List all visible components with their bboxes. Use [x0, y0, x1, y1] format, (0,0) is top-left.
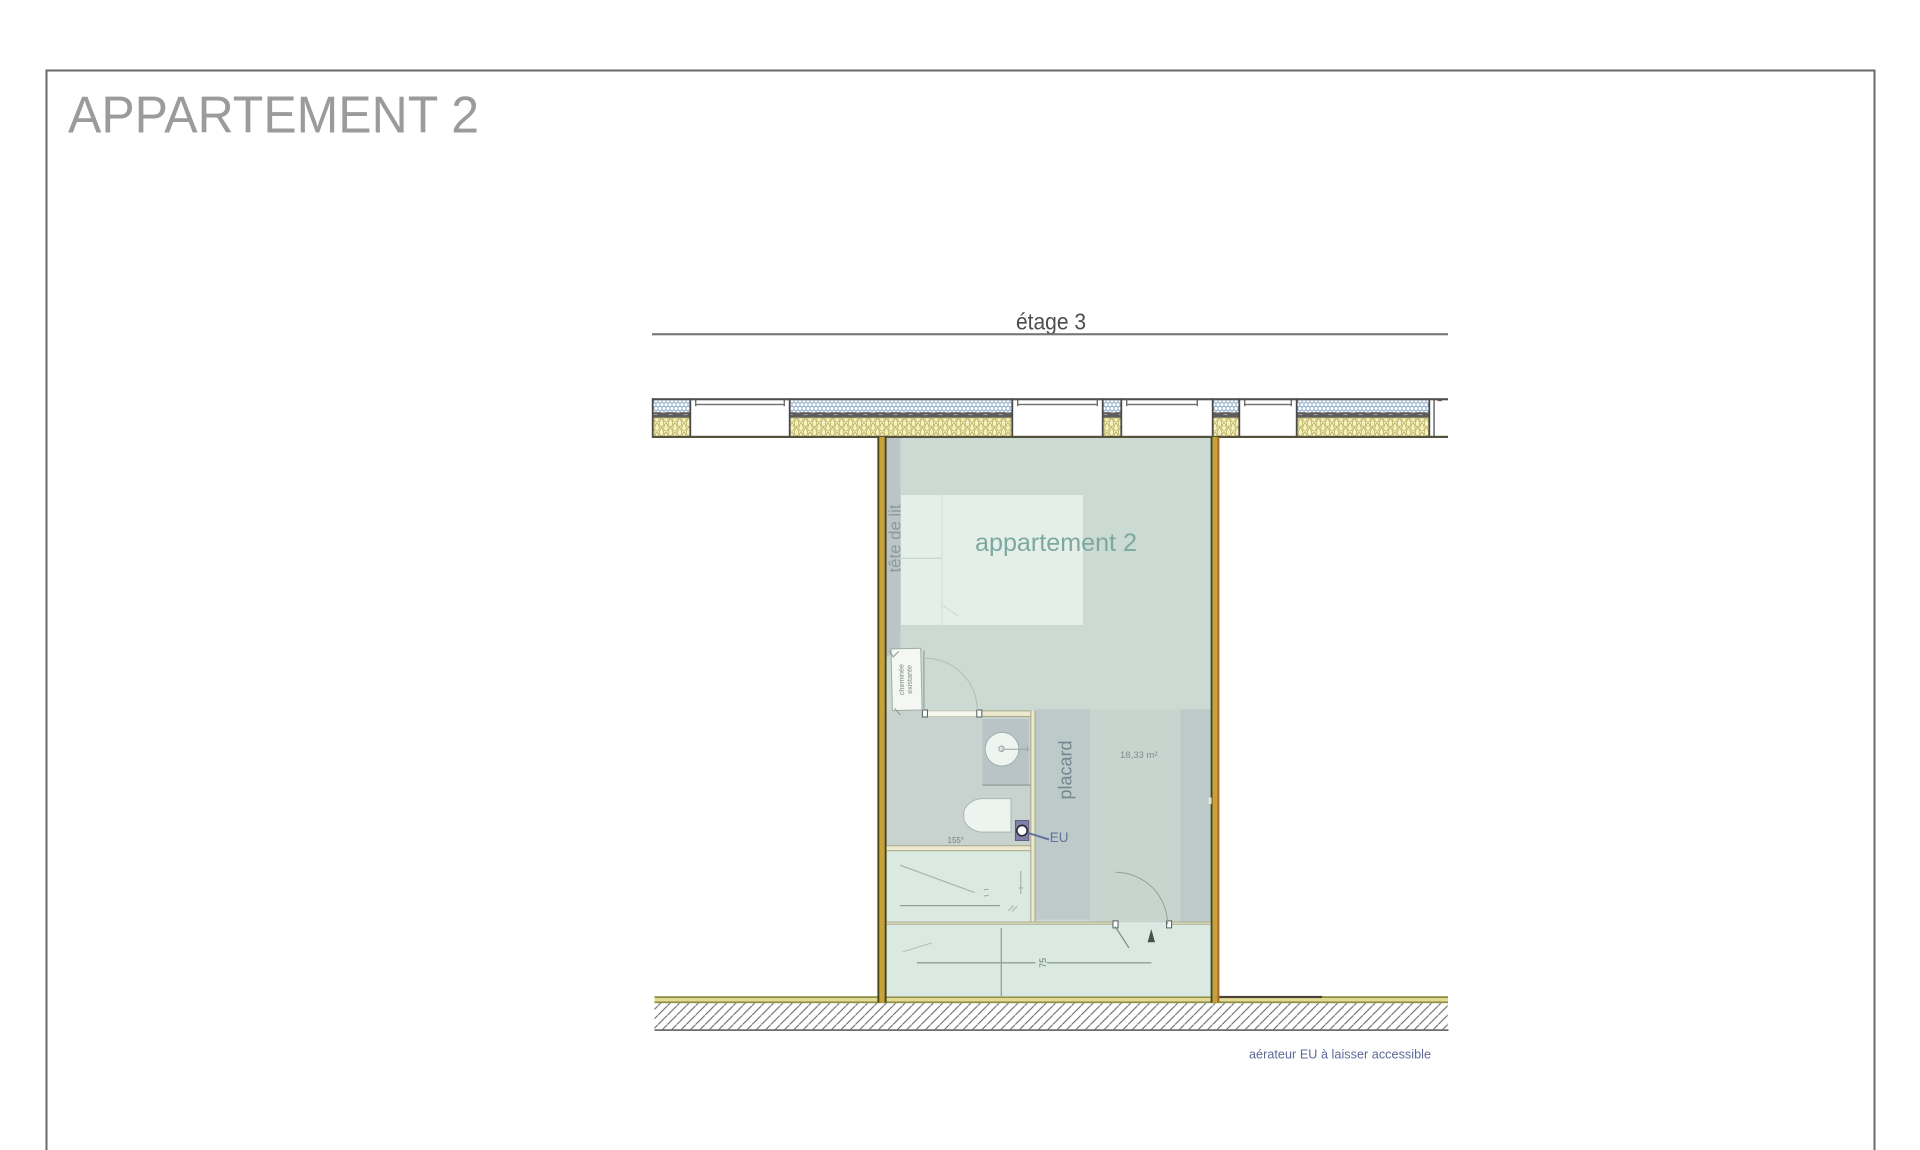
svg-text:placard: placard — [1056, 740, 1076, 799]
svg-text:155°: 155° — [948, 836, 965, 845]
svg-text:appartement 2: appartement 2 — [975, 529, 1137, 557]
svg-text:tête de lit: tête de lit — [886, 504, 905, 572]
svg-text:EU: EU — [1050, 830, 1069, 845]
svg-text:18,33 m²: 18,33 m² — [1120, 750, 1158, 761]
svg-text:aérateur EU à laisser accessib: aérateur EU à laisser accessible — [1249, 1047, 1431, 1061]
svg-text:étage 3: étage 3 — [1016, 308, 1086, 334]
svg-text:75: 75 — [1038, 958, 1048, 968]
svg-text:existante: existante — [904, 665, 914, 694]
svg-text:APPARTEMENT 2: APPARTEMENT 2 — [68, 87, 479, 145]
